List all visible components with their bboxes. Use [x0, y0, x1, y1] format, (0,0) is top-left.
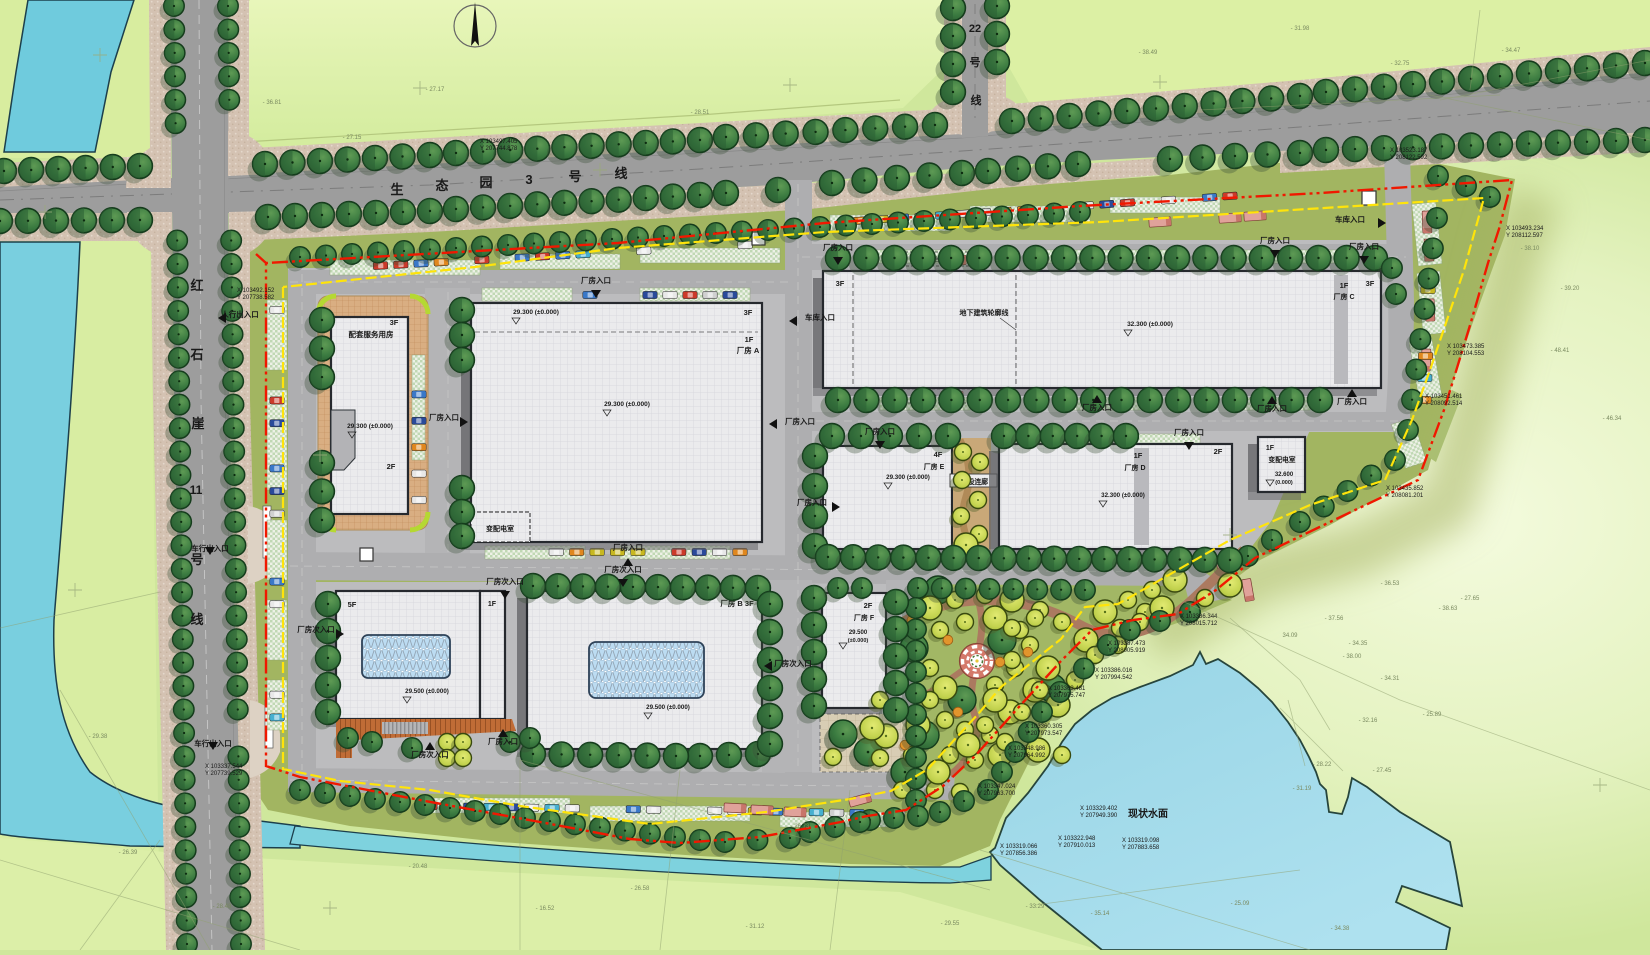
svg-text:32.300 (±0.000): 32.300 (±0.000) — [1101, 492, 1145, 499]
svg-text:厂房次入口: 厂房次入口 — [604, 564, 642, 574]
svg-text:X 103523.187: X 103523.187 — [1390, 148, 1428, 154]
svg-text:X 103492.152: X 103492.152 — [237, 288, 275, 294]
svg-text:- 35.14: - 35.14 — [1091, 911, 1110, 917]
svg-text:号: 号 — [190, 552, 203, 567]
svg-text:(±0.000): (±0.000) — [848, 638, 869, 644]
svg-text:- 39.20: - 39.20 — [1561, 286, 1580, 292]
svg-text:Y 207744.878: Y 207744.878 — [480, 146, 518, 152]
svg-text:- 38.63: - 38.63 — [1439, 606, 1458, 612]
svg-text:- 48.41: - 48.41 — [1551, 348, 1570, 354]
svg-text:29.300 (±0.000): 29.300 (±0.000) — [886, 474, 930, 481]
svg-text:5F: 5F — [348, 600, 357, 609]
svg-text:X 103493.234: X 103493.234 — [1506, 226, 1544, 232]
svg-text:- 32.16: - 32.16 — [1359, 718, 1378, 724]
svg-text:- 26.39: - 26.39 — [119, 850, 138, 856]
svg-text:厂房 D: 厂房 D — [1125, 463, 1146, 472]
svg-text:- 31.12: - 31.12 — [746, 924, 765, 930]
svg-text:- 27.15: - 27.15 — [343, 135, 362, 141]
svg-text:厂房入口: 厂房入口 — [581, 275, 611, 285]
svg-text:1F: 1F — [1340, 281, 1349, 290]
svg-text:厂房入口: 厂房入口 — [1082, 402, 1112, 412]
svg-text:- 25.09: - 25.09 — [1231, 901, 1250, 907]
svg-text:- 29.55: - 29.55 — [941, 921, 960, 927]
svg-text:X 103322.948: X 103322.948 — [1058, 836, 1096, 842]
svg-text:Y 208092.514: Y 208092.514 — [1425, 401, 1463, 407]
svg-text:现状水面: 现状水面 — [1128, 807, 1168, 820]
svg-text:厂房次入口: 厂房次入口 — [486, 576, 524, 586]
svg-text:Y 207994.542: Y 207994.542 — [1095, 675, 1133, 681]
svg-text:- 27.65: - 27.65 — [1461, 596, 1480, 602]
svg-text:- 36.53: - 36.53 — [1381, 581, 1400, 587]
svg-text:厂房入口: 厂房入口 — [785, 416, 815, 426]
svg-text:号: 号 — [568, 169, 581, 184]
svg-text:- 26.58: - 26.58 — [631, 886, 650, 892]
svg-text:厂房入口: 厂房入口 — [429, 412, 459, 422]
svg-text:3F: 3F — [744, 308, 753, 317]
svg-text:X 103329.402: X 103329.402 — [1080, 806, 1118, 812]
svg-text:Y 208112.597: Y 208112.597 — [1506, 233, 1543, 239]
svg-text:29.500 (±0.000): 29.500 (±0.000) — [405, 688, 449, 695]
svg-text:厂房入口: 厂房入口 — [797, 497, 827, 507]
svg-text:地下建筑轮廓线: 地下建筑轮廓线 — [960, 308, 1009, 317]
svg-text:- 29.38: - 29.38 — [89, 734, 108, 740]
svg-text:Y 208081.201: Y 208081.201 — [1386, 493, 1424, 499]
svg-text:3F: 3F — [390, 318, 399, 327]
svg-text:厂房入口: 厂房入口 — [823, 242, 853, 252]
svg-text:(0.000): (0.000) — [1275, 480, 1293, 486]
svg-text:厂房 E: 厂房 E — [924, 462, 945, 471]
svg-text:- 36.81: - 36.81 — [263, 100, 282, 106]
svg-text:Y 208104.553: Y 208104.553 — [1447, 351, 1485, 357]
svg-text:29.300 (±0.000): 29.300 (±0.000) — [347, 423, 393, 430]
svg-text:车库入口: 车库入口 — [805, 312, 835, 322]
svg-text:厂房次入口: 厂房次入口 — [411, 749, 449, 759]
svg-text:- 34.31: - 34.31 — [1381, 676, 1400, 682]
svg-text:X 103497.405: X 103497.405 — [480, 139, 518, 145]
svg-text:29.500 (±0.000): 29.500 (±0.000) — [646, 704, 690, 711]
svg-text:X 103451.461: X 103451.461 — [1425, 394, 1463, 400]
svg-text:Y 208122.592: Y 208122.592 — [1390, 155, 1428, 161]
svg-text:配套服务用房: 配套服务用房 — [349, 329, 394, 339]
svg-text:态: 态 — [435, 178, 448, 193]
svg-text:线: 线 — [971, 93, 982, 107]
svg-text:Y 207975.747: Y 207975.747 — [1048, 693, 1086, 699]
svg-text:- 46.34: - 46.34 — [1603, 416, 1622, 422]
svg-text:2F: 2F — [387, 462, 396, 471]
svg-text:厂房入口: 厂房入口 — [488, 736, 518, 746]
svg-text:Y 207949.390: Y 207949.390 — [1080, 813, 1118, 819]
svg-text:号: 号 — [970, 56, 981, 69]
svg-text:- 34.38: - 34.38 — [1331, 926, 1350, 932]
svg-text:3: 3 — [525, 172, 532, 187]
svg-text:1F: 1F — [1134, 451, 1143, 460]
svg-text:3F: 3F — [1366, 279, 1375, 288]
svg-text:X 103473.385: X 103473.385 — [1447, 344, 1485, 350]
svg-text:Y 208015.712: Y 208015.712 — [1180, 621, 1218, 627]
svg-text:厂房入口: 厂房入口 — [1260, 235, 1290, 245]
svg-text:34.09: 34.09 — [1282, 633, 1298, 639]
svg-text:厂房次入口: 厂房次入口 — [297, 624, 335, 634]
svg-text:Y 207738.582: Y 207738.582 — [237, 295, 275, 301]
svg-text:石: 石 — [189, 347, 203, 362]
svg-text:厂房入口: 厂房入口 — [1174, 427, 1204, 437]
svg-text:变配电室: 变配电室 — [1268, 455, 1295, 464]
svg-text:变配电室: 变配电室 — [486, 524, 514, 533]
svg-text:- 26.73: - 26.73 — [791, 824, 810, 830]
svg-text:X 103435.852: X 103435.852 — [1386, 486, 1424, 492]
svg-text:X 103360.305: X 103360.305 — [1025, 724, 1063, 730]
svg-text:3F: 3F — [836, 279, 845, 288]
svg-text:车库入口: 车库入口 — [1335, 214, 1365, 224]
svg-text:- 38.10: - 38.10 — [1521, 246, 1540, 252]
svg-text:1F: 1F — [488, 601, 497, 608]
svg-text:厂房入口: 厂房入口 — [613, 542, 643, 552]
svg-text:11: 11 — [190, 483, 203, 497]
svg-text:人行出入口: 人行出入口 — [221, 309, 259, 319]
svg-text:Y 207739.529: Y 207739.529 — [205, 771, 243, 777]
svg-text:22: 22 — [969, 23, 981, 35]
svg-text:生: 生 — [390, 182, 403, 197]
svg-text:- 28.48: - 28.48 — [213, 904, 232, 910]
svg-text:- 16.52: - 16.52 — [536, 906, 555, 912]
svg-text:32.600: 32.600 — [1275, 472, 1294, 478]
svg-text:2F: 2F — [1214, 447, 1223, 456]
svg-text:- 38.49: - 38.49 — [1139, 50, 1158, 56]
svg-text:- 28.22: - 28.22 — [1313, 762, 1332, 768]
svg-text:- 20.48: - 20.48 — [409, 864, 428, 870]
svg-text:- 32.75: - 32.75 — [1391, 61, 1410, 67]
svg-text:园: 园 — [479, 175, 492, 190]
svg-text:- 31.19: - 31.19 — [1293, 786, 1312, 792]
svg-text:- 38.00: - 38.00 — [1343, 654, 1362, 660]
svg-text:X 103319.066: X 103319.066 — [1000, 844, 1038, 850]
svg-text:2F: 2F — [864, 601, 873, 610]
svg-text:厂房 A: 厂房 A — [737, 345, 760, 355]
svg-text:X 103319.098: X 103319.098 — [1122, 838, 1160, 844]
svg-text:29.300 (±0.000): 29.300 (±0.000) — [604, 401, 650, 408]
svg-text:线: 线 — [190, 612, 203, 627]
svg-text:厂房入口: 厂房入口 — [1349, 241, 1379, 251]
svg-text:Y 207856.386: Y 207856.386 — [1000, 851, 1038, 857]
svg-text:厂房入口: 厂房入口 — [1337, 396, 1367, 406]
svg-text:Y 207963.700: Y 207963.700 — [978, 791, 1016, 797]
svg-text:Y 207883.658: Y 207883.658 — [1122, 845, 1160, 851]
svg-text:厂房 F: 厂房 F — [854, 613, 875, 622]
svg-text:厂房入口: 厂房入口 — [1257, 403, 1287, 413]
svg-text:29.300 (±0.000): 29.300 (±0.000) — [513, 309, 559, 316]
svg-text:厂房 C: 厂房 C — [1334, 292, 1355, 301]
svg-text:- 27.17: - 27.17 — [426, 87, 445, 93]
svg-text:厂房入口: 厂房入口 — [865, 426, 895, 436]
svg-text:32.300 (±0.000): 32.300 (±0.000) — [1127, 321, 1173, 328]
svg-text:- 28.51: - 28.51 — [691, 110, 710, 116]
svg-text:- 25.89: - 25.89 — [1423, 712, 1442, 718]
svg-text:X 103386.016: X 103386.016 — [1095, 668, 1133, 674]
svg-text:- 31.98: - 31.98 — [1291, 26, 1310, 32]
svg-text:X 103363.481: X 103363.481 — [1048, 686, 1086, 692]
svg-text:红: 红 — [190, 278, 203, 293]
svg-text:X 103337.544: X 103337.544 — [205, 764, 243, 770]
svg-text:1F: 1F — [745, 335, 754, 344]
svg-text:Y 207973.547: Y 207973.547 — [1025, 731, 1063, 737]
svg-text:X 103348.986: X 103348.986 — [1008, 746, 1046, 752]
svg-text:- 34.47: - 34.47 — [1502, 48, 1521, 54]
svg-text:- 34.35: - 34.35 — [1349, 641, 1368, 647]
svg-text:Y 208005.919: Y 208005.919 — [1108, 648, 1146, 654]
svg-text:崖: 崖 — [191, 416, 204, 431]
svg-text:Y 207910.013: Y 207910.013 — [1058, 843, 1096, 849]
svg-text:1F: 1F — [1266, 445, 1275, 452]
svg-text:29.500: 29.500 — [849, 630, 868, 636]
svg-text:厂房次入口: 厂房次入口 — [774, 658, 812, 668]
svg-text:X 103387.473: X 103387.473 — [1108, 641, 1146, 647]
svg-text:- 37.56: - 37.56 — [1325, 616, 1344, 622]
svg-text:- 27.45: - 27.45 — [1373, 768, 1392, 774]
svg-text:Y 207964.992: Y 207964.992 — [1008, 753, 1046, 759]
svg-text:X 103347.024: X 103347.024 — [978, 784, 1016, 790]
svg-text:线: 线 — [614, 166, 627, 181]
